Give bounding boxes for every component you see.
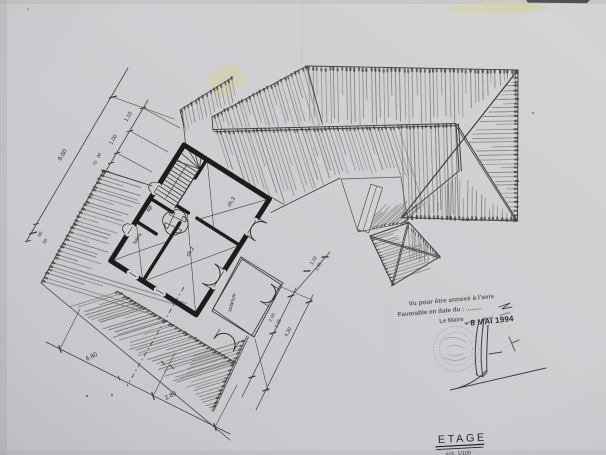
svg-text:éch. 1/100: éch. 1/100 (446, 450, 471, 455)
